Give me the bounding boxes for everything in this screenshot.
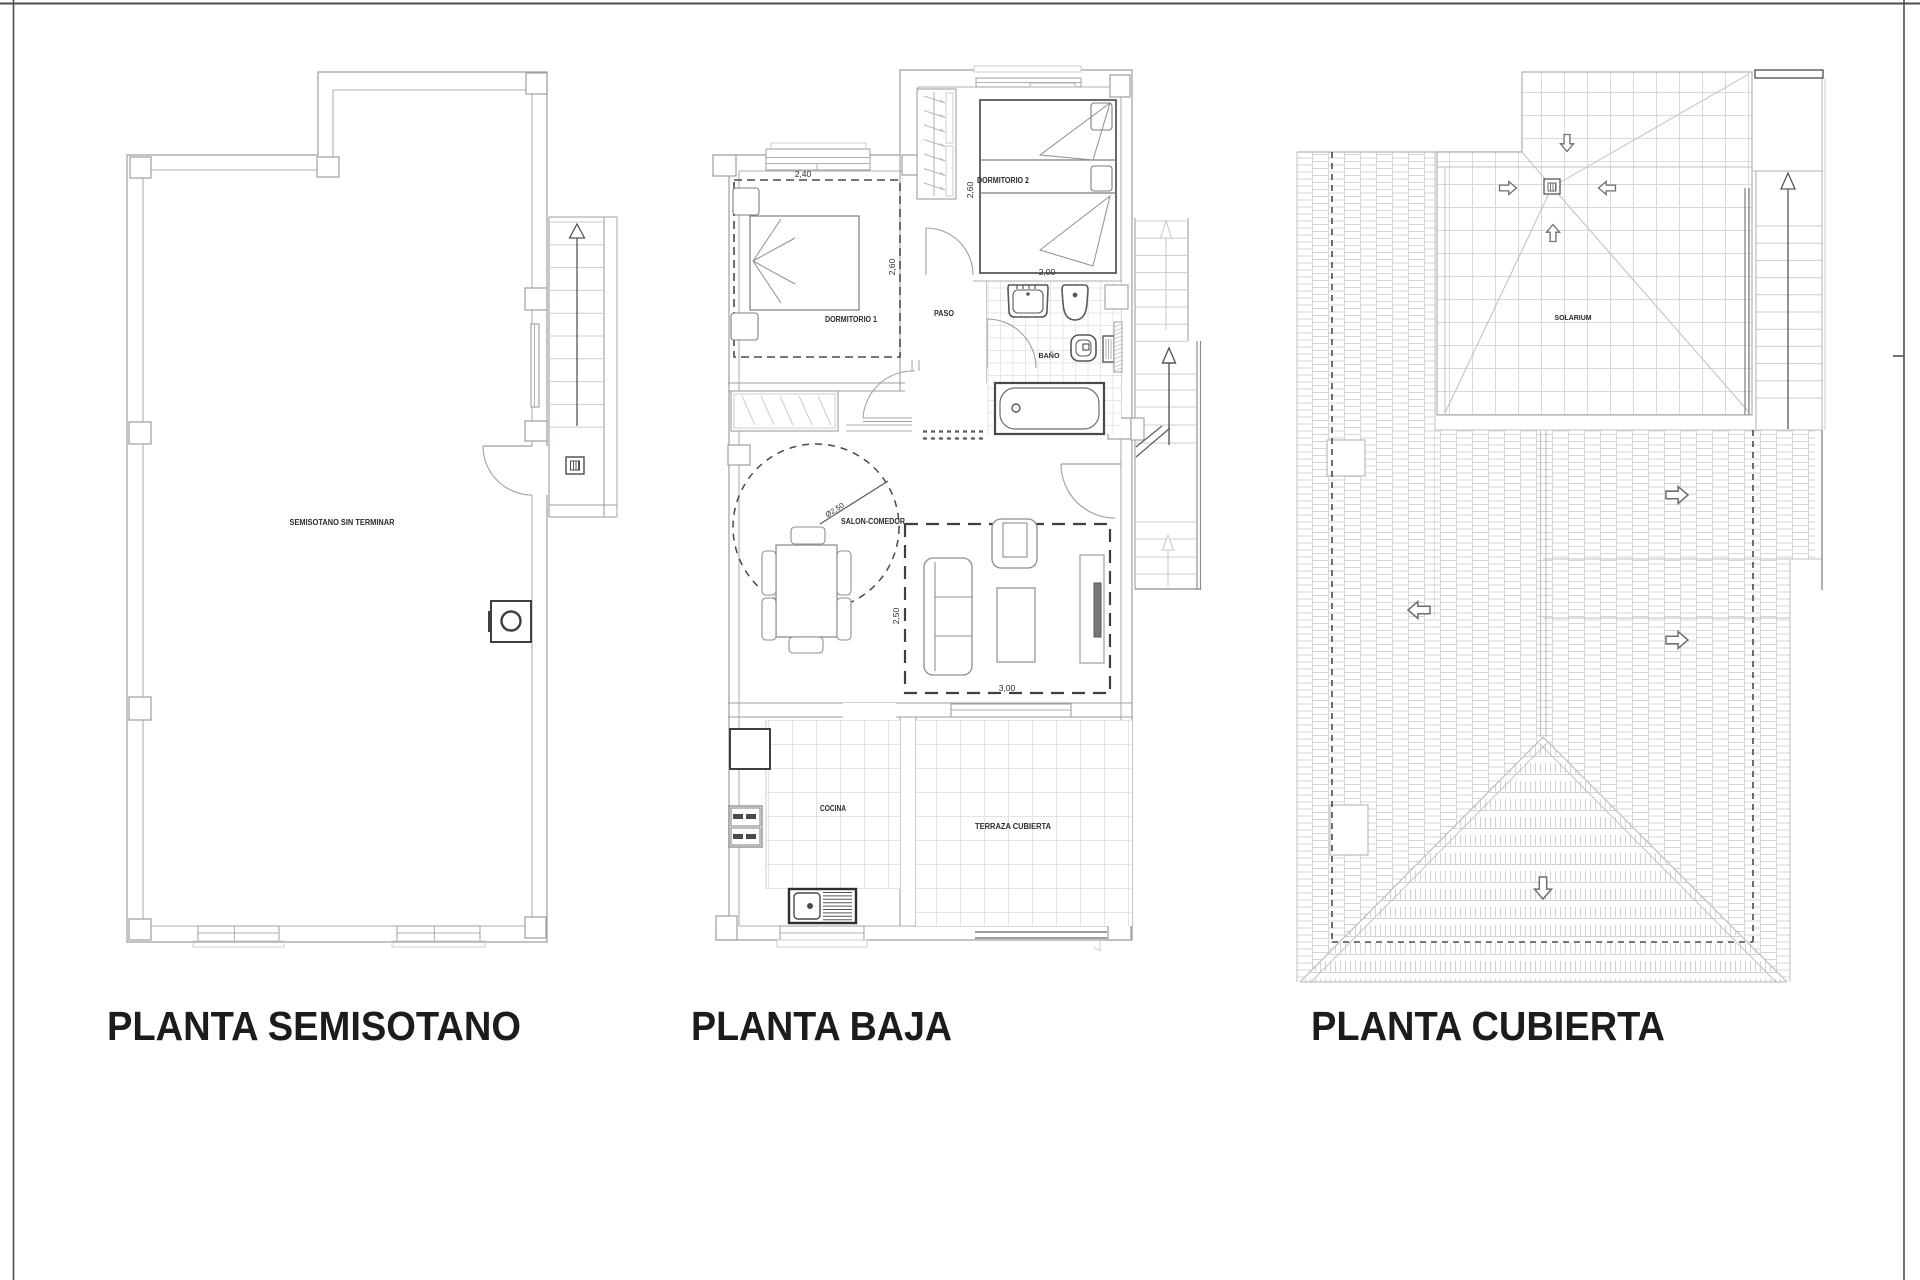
svg-text:2,50: 2,50 — [891, 607, 901, 624]
svg-text:2,60: 2,60 — [965, 181, 975, 198]
svg-text:PLANTA CUBIERTA: PLANTA CUBIERTA — [1311, 1003, 1665, 1049]
svg-text:COCINA: COCINA — [820, 804, 846, 813]
svg-text:3,00: 3,00 — [999, 683, 1016, 693]
svg-text:PLANTA BAJA: PLANTA BAJA — [691, 1003, 952, 1049]
svg-text:BAÑO: BAÑO — [1039, 351, 1060, 360]
svg-text:2,00: 2,00 — [1039, 267, 1056, 277]
svg-text:DORMITORIO 2: DORMITORIO 2 — [977, 176, 1029, 185]
svg-text:2,60: 2,60 — [887, 258, 897, 275]
svg-text:2,40: 2,40 — [795, 169, 812, 179]
svg-text:TERRAZA CUBIERTA: TERRAZA CUBIERTA — [975, 822, 1051, 831]
svg-text:SOLARIUM: SOLARIUM — [1555, 313, 1592, 322]
svg-text:SALON-COMEDOR: SALON-COMEDOR — [841, 517, 905, 526]
svg-text:DORMITORIO 1: DORMITORIO 1 — [825, 315, 877, 324]
svg-text:SEMISOTANO SIN TERMINAR: SEMISOTANO SIN TERMINAR — [290, 518, 395, 527]
svg-text:PLANTA SEMISOTANO: PLANTA SEMISOTANO — [107, 1003, 521, 1049]
svg-text:PASO: PASO — [934, 309, 954, 318]
